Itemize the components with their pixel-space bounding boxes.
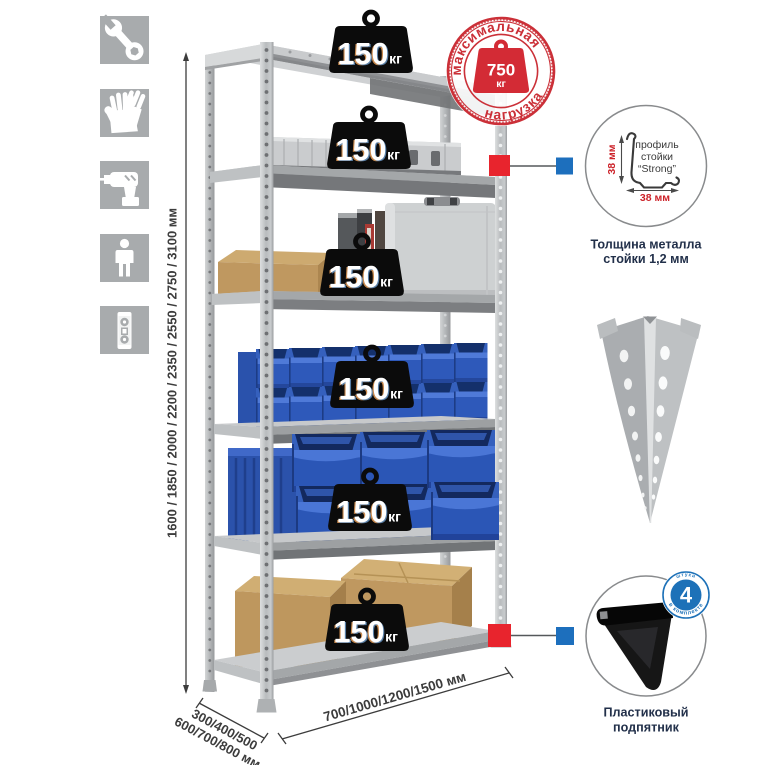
svg-text:стойки 1,2 мм: стойки 1,2 мм	[603, 252, 689, 266]
svg-text:кг: кг	[496, 78, 506, 90]
svg-text:750: 750	[487, 61, 515, 80]
svg-text:38 мм: 38 мм	[640, 192, 670, 204]
svg-text:подпятник: подпятник	[613, 720, 680, 734]
svg-text:Толщина металла: Толщина металла	[590, 238, 702, 252]
svg-text:4: 4	[680, 583, 693, 608]
svg-text:стойки: стойки	[641, 151, 673, 163]
svg-text:Пластиковый: Пластиковый	[603, 706, 688, 720]
svg-text:1600 / 1850 / 2000 / 2200 / 23: 1600 / 1850 / 2000 / 2200 / 2350 / 2550 …	[165, 208, 180, 538]
svg-text:“Strong”: “Strong”	[638, 163, 676, 175]
svg-text:профиль: профиль	[635, 139, 679, 151]
svg-text:38 мм: 38 мм	[606, 144, 618, 174]
